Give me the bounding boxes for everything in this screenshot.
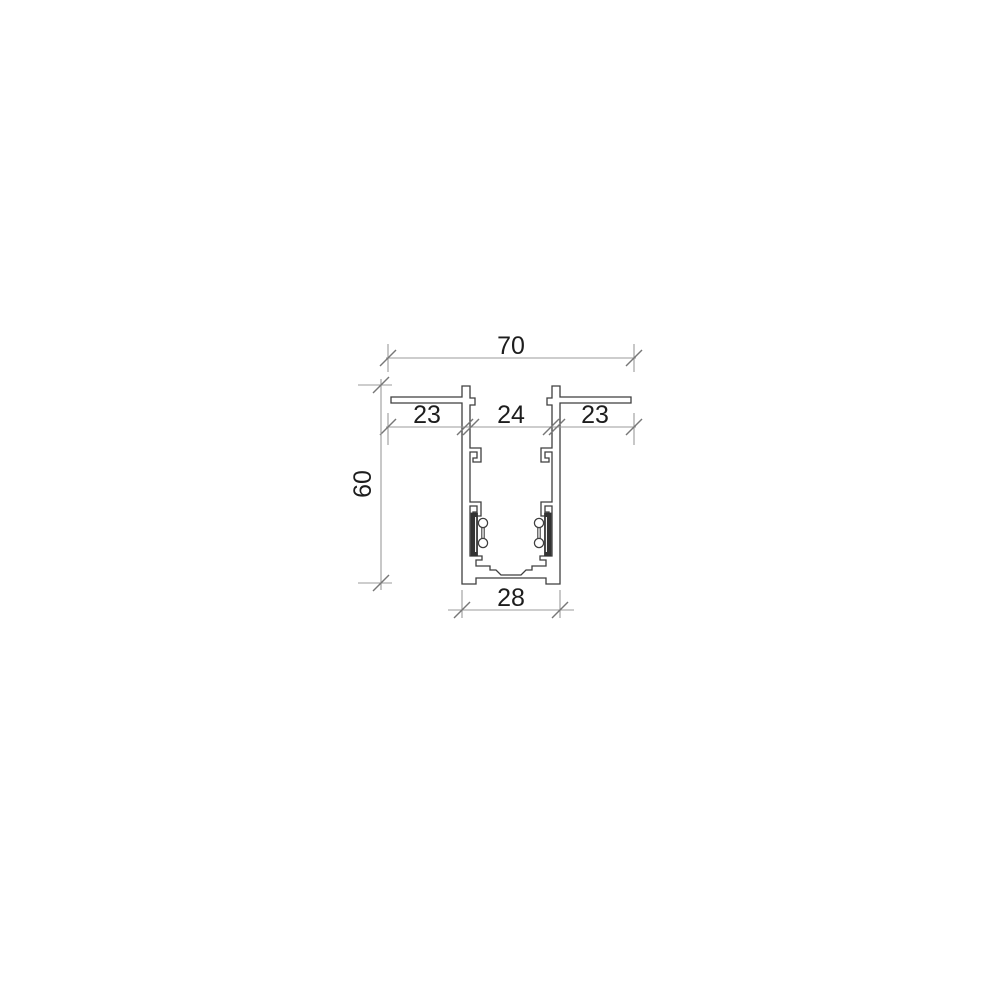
left-contact-assembly xyxy=(471,513,488,556)
dimension-segments: 23 24 23 xyxy=(380,401,642,445)
left-contact-upper xyxy=(478,518,487,527)
left-contact-lower xyxy=(478,538,487,547)
dimension-left-segment-label: 23 xyxy=(413,401,441,429)
right-contact-assembly xyxy=(534,513,551,556)
dimension-bottom-width: 28 xyxy=(448,584,574,618)
left-insulator-strip xyxy=(471,513,478,556)
dimension-center-segment-label: 24 xyxy=(497,401,525,429)
dimension-height-label: 60 xyxy=(349,470,377,498)
left-contact-rod xyxy=(482,528,484,539)
right-contact-lower xyxy=(534,538,543,547)
drawing-canvas: 70 23 24 23 60 28 xyxy=(0,0,1000,1000)
dimension-top-width-label: 70 xyxy=(497,332,525,360)
dimension-height: 60 xyxy=(349,377,392,591)
dimension-right-segment-label: 23 xyxy=(581,401,609,429)
right-insulator-strip xyxy=(545,513,552,556)
dimension-top-width: 70 xyxy=(380,332,642,372)
dimension-bottom-width-label: 28 xyxy=(497,584,525,612)
right-contact-rod xyxy=(538,528,540,539)
right-contact-upper xyxy=(534,518,543,527)
technical-drawing: 70 23 24 23 60 28 xyxy=(0,0,1000,1000)
